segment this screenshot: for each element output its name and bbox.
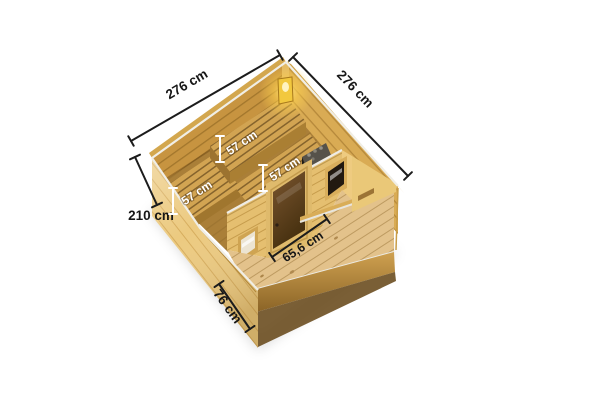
sauna-diagram: 276 cm 276 cm 210 cm 76 cm 65,6 cm <box>0 0 600 400</box>
heater-stone <box>307 153 311 157</box>
door-handle <box>275 223 278 226</box>
product-image: 276 cm 276 cm 210 cm 76 cm 65,6 cm <box>0 0 600 400</box>
dimension-label-top-right: 276 cm <box>334 67 377 110</box>
dimension-label-height: 210 cm <box>128 208 174 223</box>
lamp-light <box>282 82 289 92</box>
heater-stone <box>313 149 317 153</box>
dimension-label-top-left: 276 cm <box>163 66 210 102</box>
heater-stone <box>319 146 323 150</box>
